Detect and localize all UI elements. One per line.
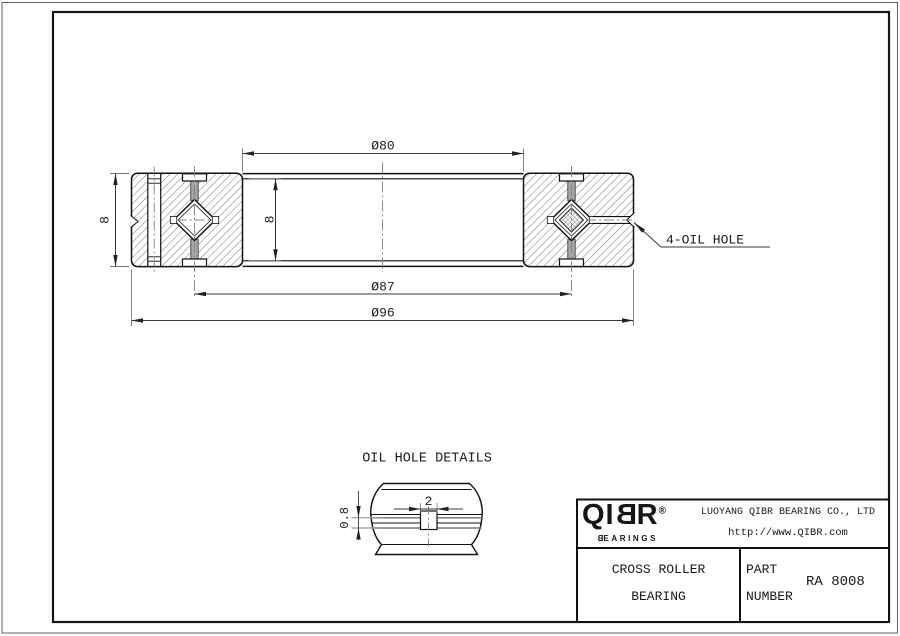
logo-mirrored-b: B <box>615 501 637 530</box>
dim-pitch: Ø87 <box>195 280 572 297</box>
dim-label-pitch: Ø87 <box>371 280 394 295</box>
oil-hole-callout-label: 4-OIL HOLE <box>666 233 744 248</box>
bearing-section-view <box>131 163 635 299</box>
dim-label-bore: Ø80 <box>371 139 394 154</box>
technical-drawing-canvas: Ø80 Ø87 Ø96 8 <box>0 0 900 636</box>
dim-label-hole-depth: 0.8 <box>338 507 352 529</box>
bolt-hole-channel <box>148 167 161 274</box>
dim-outer: Ø96 <box>132 270 634 327</box>
logo-brand-b: B <box>595 534 603 543</box>
ring-rails <box>243 174 524 267</box>
dim-inner-height: 8 <box>249 179 281 261</box>
company-name: LUOYANG QIBR BEARING CO., LTD <box>680 507 896 518</box>
oil-hole-leader: 4-OIL HOLE <box>634 223 770 248</box>
logo-part1: QI <box>582 499 615 531</box>
oil-hole-detail-view: OIL HOLE DETAILS 2 0.8 <box>338 452 492 555</box>
part-label-line1: PART <box>746 562 777 577</box>
centerlines <box>195 163 572 299</box>
logo-part2: R <box>637 499 659 531</box>
part-number: RA 8008 <box>806 574 865 590</box>
registered-trademark-symbol: ® <box>659 505 666 516</box>
part-label-line2: NUMBER <box>746 589 793 604</box>
drawing-sheet: Ø80 Ø87 Ø96 8 <box>0 0 900 636</box>
company-website: http://www.QIBR.com <box>680 527 896 539</box>
dim-label-inner-height: 8 <box>263 216 278 224</box>
logo-subtitle: BEARINGS <box>595 534 658 543</box>
logo-brand-rest: EARINGS <box>603 534 658 543</box>
company-logo: QIBR® <box>582 501 666 530</box>
dim-label-outer: Ø96 <box>371 306 394 321</box>
product-name-line2: BEARING <box>577 589 740 604</box>
dim-section-height: 8 <box>98 174 130 267</box>
product-name-line1: CROSS ROLLER <box>577 562 740 577</box>
dim-label-section-height: 8 <box>98 216 113 224</box>
detail-view-title: OIL HOLE DETAILS <box>362 452 492 467</box>
dim-bore: Ø80 <box>243 139 524 172</box>
dim-label-hole-diameter: 2 <box>425 494 433 509</box>
